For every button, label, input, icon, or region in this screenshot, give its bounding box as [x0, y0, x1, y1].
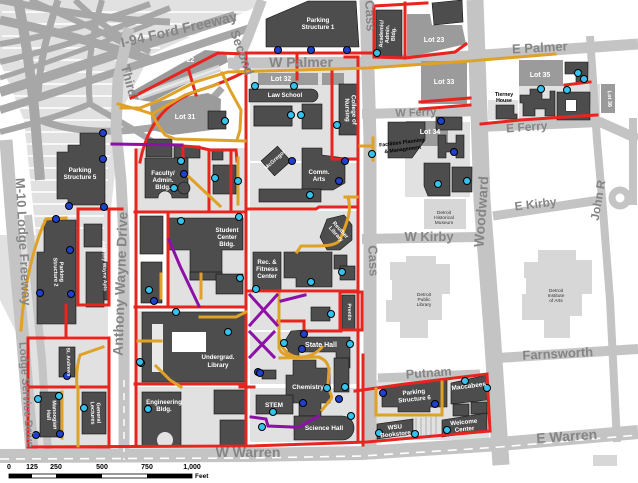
svg-text:Student: Student: [215, 227, 238, 234]
svg-text:W Warren: W Warren: [216, 444, 281, 460]
svg-text:1,000: 1,000: [183, 464, 201, 471]
svg-text:Center: Center: [257, 273, 277, 280]
svg-text:Lot 32: Lot 32: [271, 76, 292, 83]
svg-text:Lot 22: Lot 22: [174, 57, 195, 64]
svg-text:Library: Library: [417, 302, 432, 308]
svg-text:W Palmer: W Palmer: [269, 54, 333, 70]
svg-text:Chemistry: Chemistry: [292, 384, 324, 391]
svg-text:750: 750: [141, 464, 153, 471]
svg-text:Bldg.: Bldg.: [156, 406, 172, 413]
svg-text:Lot 36: Lot 36: [606, 91, 613, 107]
svg-text:Structure 1: Structure 1: [302, 24, 335, 31]
svg-text:Arts: Arts: [313, 176, 326, 183]
svg-text:E Palmer: E Palmer: [512, 39, 568, 57]
svg-text:500: 500: [96, 464, 108, 471]
svg-text:St. Andrews: St. Andrews: [65, 348, 72, 377]
svg-text:W Kirby: W Kirby: [404, 229, 454, 244]
svg-text:Center: Center: [217, 234, 237, 241]
svg-text:College ofNursing: College ofNursing: [343, 95, 358, 126]
svg-text:Faculty/: Faculty/: [151, 170, 175, 177]
svg-text:Science Hall: Science Hall: [305, 425, 343, 432]
svg-text:STEM: STEM: [265, 402, 283, 409]
svg-text:Engineering: Engineering: [146, 399, 182, 406]
svg-text:E Ferry: E Ferry: [506, 119, 549, 136]
svg-text:State Hall: State Hall: [305, 342, 337, 349]
svg-text:Structure 5: Structure 5: [64, 174, 97, 181]
svg-text:Undergrad.: Undergrad.: [201, 354, 234, 361]
svg-text:Comm.: Comm.: [309, 169, 330, 176]
svg-text:0: 0: [7, 464, 11, 471]
svg-text:Lot 33: Lot 33: [434, 79, 455, 86]
svg-text:Library: Library: [208, 362, 230, 369]
svg-text:Lot 34: Lot 34: [420, 129, 441, 136]
svg-text:Admin.: Admin.: [153, 177, 174, 184]
svg-text:Rec. &: Rec. &: [257, 259, 277, 266]
svg-text:Law School: Law School: [268, 92, 303, 99]
svg-text:Museum: Museum: [435, 220, 453, 226]
svg-text:Prentis: Prentis: [346, 303, 353, 320]
svg-text:Lot 35: Lot 35: [530, 72, 551, 79]
svg-text:Bldg.: Bldg.: [219, 241, 235, 248]
svg-text:W Ferry: W Ferry: [395, 106, 437, 119]
svg-text:250: 250: [50, 464, 62, 471]
svg-text:Bldg.: Bldg.: [155, 184, 171, 191]
svg-text:Parking: Parking: [69, 167, 92, 174]
svg-text:Lot 31: Lot 31: [175, 114, 196, 121]
svg-text:Feet: Feet: [195, 473, 209, 480]
svg-text:House: House: [496, 98, 512, 104]
svg-text:Lot 23: Lot 23: [424, 37, 445, 44]
svg-text:Cass: Cass: [365, 245, 382, 277]
svg-text:125: 125: [26, 464, 38, 471]
svg-text:Fitness: Fitness: [256, 266, 278, 273]
svg-text:Cass: Cass: [362, 0, 379, 32]
svg-text:Parking: Parking: [307, 17, 330, 24]
svg-text:GeneralLectures: GeneralLectures: [89, 401, 102, 424]
svg-text:of Arts: of Arts: [549, 298, 563, 304]
